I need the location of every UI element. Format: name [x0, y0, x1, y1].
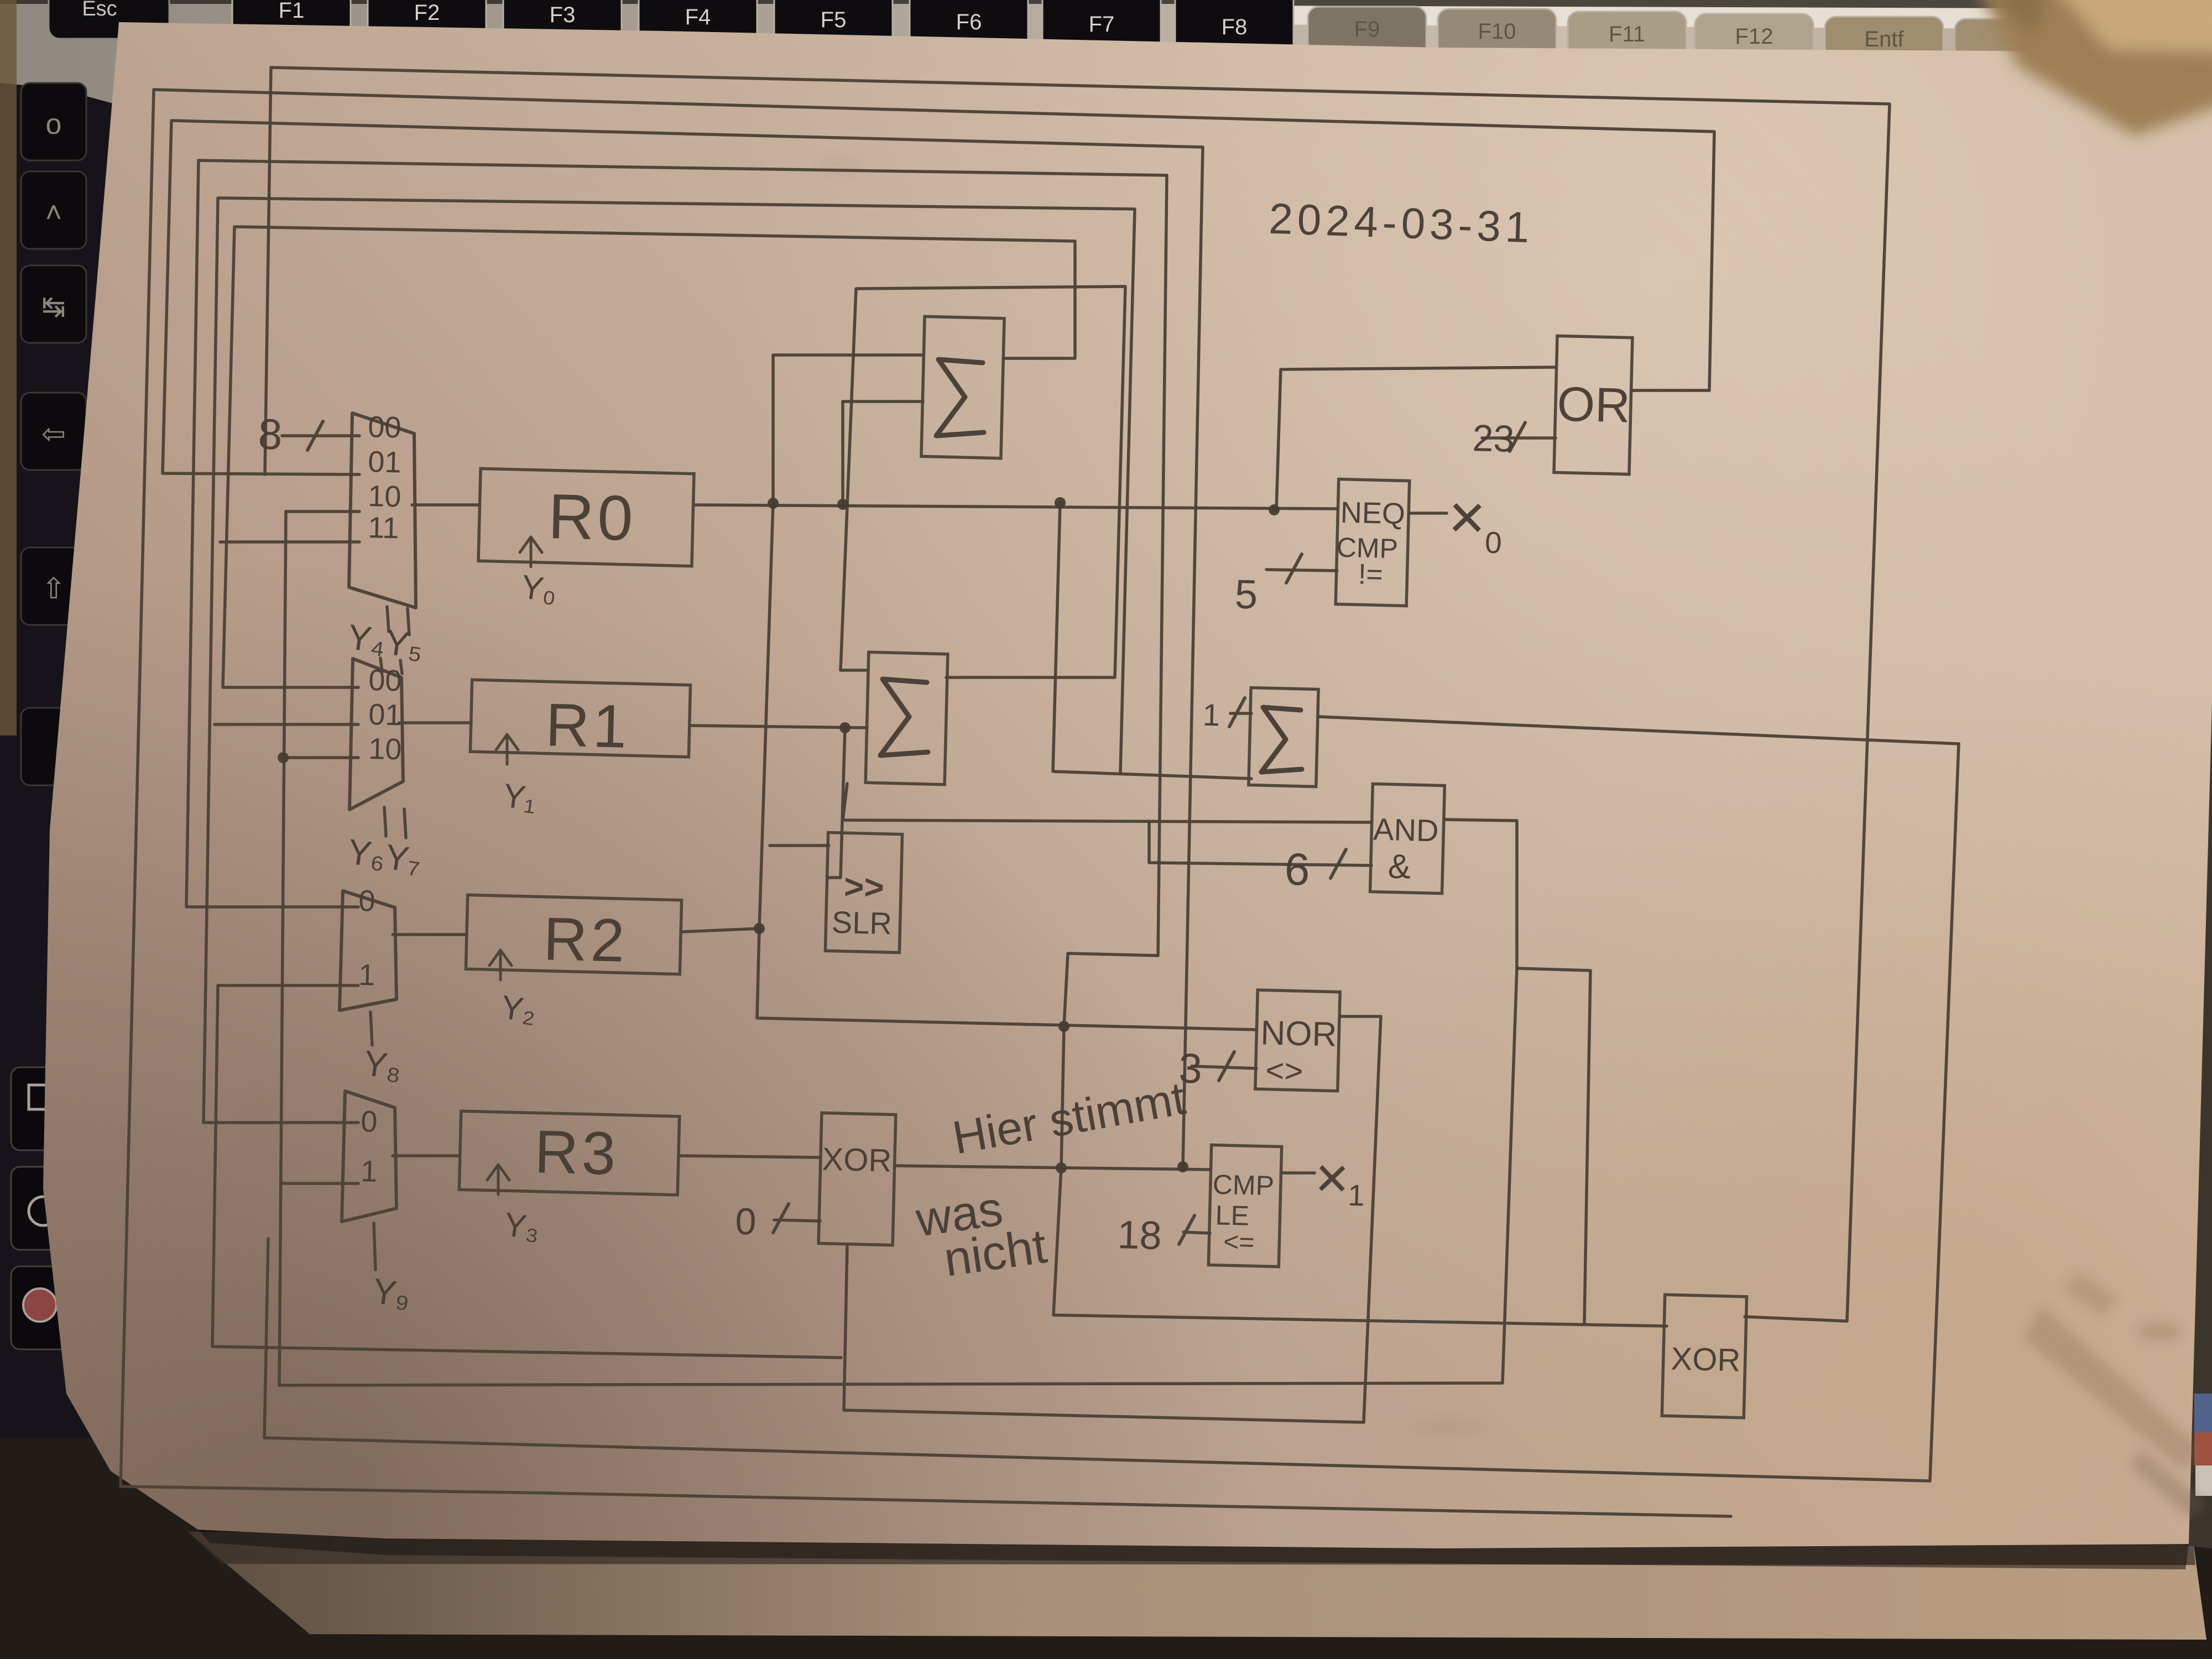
svg-text:<>: <> — [1265, 1052, 1303, 1089]
svg-text:>>: >> — [843, 868, 884, 907]
svg-text:F12: F12 — [1735, 24, 1773, 49]
svg-text:F7: F7 — [1089, 12, 1115, 36]
svg-text:NEQ: NEQ — [1340, 496, 1405, 531]
svg-text:11: 11 — [368, 511, 400, 545]
svg-text:Entf: Entf — [1864, 27, 1904, 51]
svg-text:F2: F2 — [414, 1, 440, 25]
svg-text:R2: R2 — [542, 905, 629, 975]
svg-text:R0: R0 — [547, 481, 637, 554]
svg-text:2024-03-31: 2024-03-31 — [1268, 194, 1535, 252]
svg-text:SLR: SLR — [831, 905, 892, 941]
svg-text:CMP: CMP — [1212, 1169, 1274, 1202]
svg-text:0: 0 — [735, 1201, 757, 1243]
svg-text:XOR: XOR — [822, 1141, 892, 1178]
svg-text:1: 1 — [358, 958, 376, 992]
svg-text:6: 6 — [1284, 844, 1311, 895]
svg-text:00: 00 — [368, 664, 403, 697]
svg-text:<=: <= — [1223, 1227, 1255, 1257]
svg-text:F10: F10 — [1478, 19, 1516, 44]
svg-text:18: 18 — [1117, 1213, 1162, 1258]
svg-text:10: 10 — [368, 479, 402, 513]
svg-text:!=: != — [1358, 558, 1383, 591]
svg-text:0: 0 — [358, 884, 376, 918]
svg-text:F11: F11 — [1609, 22, 1645, 46]
svg-text:01: 01 — [368, 698, 403, 732]
svg-text:F3: F3 — [550, 3, 576, 27]
svg-text:˄: ˄ — [45, 197, 62, 229]
svg-text:Y₃: Y₃ — [502, 1206, 542, 1247]
svg-text:F8: F8 — [1222, 15, 1248, 39]
svg-text:XOR: XOR — [1671, 1340, 1741, 1378]
svg-text:Y₉: Y₉ — [370, 1271, 413, 1316]
svg-text:1: 1 — [361, 1155, 378, 1188]
svg-text:Y₁: Y₁ — [500, 776, 539, 818]
svg-text:Y₈: Y₈ — [361, 1043, 405, 1088]
svg-text:8: 8 — [258, 409, 283, 458]
svg-text:Y₀: Y₀ — [519, 568, 560, 609]
svg-text:F5: F5 — [821, 8, 847, 32]
svg-text:↹: ↹ — [41, 291, 66, 323]
svg-text:F6: F6 — [956, 10, 982, 34]
svg-text:5: 5 — [1234, 571, 1258, 618]
svg-text:R3: R3 — [534, 1118, 620, 1188]
svg-text:OR: OR — [1557, 376, 1631, 432]
svg-text:01: 01 — [368, 445, 402, 479]
svg-text:1: 1 — [1202, 697, 1220, 733]
svg-text:R1: R1 — [545, 691, 631, 761]
svg-text:✕: ✕ — [1446, 491, 1488, 546]
svg-text:Esc: Esc — [82, 0, 117, 20]
svg-text:F4: F4 — [685, 5, 711, 29]
svg-text:o: o — [46, 108, 62, 140]
svg-text:✕: ✕ — [1313, 1154, 1351, 1204]
svg-text:⇧: ⇧ — [41, 573, 66, 605]
svg-text:23: 23 — [1472, 417, 1515, 460]
svg-text:00: 00 — [368, 410, 402, 444]
svg-text:1: 1 — [1348, 1179, 1365, 1213]
svg-text:10: 10 — [368, 732, 403, 766]
svg-text:0: 0 — [361, 1105, 378, 1139]
svg-text:F9: F9 — [1354, 17, 1380, 41]
svg-text:F1: F1 — [279, 0, 305, 23]
svg-text:&: & — [1387, 848, 1411, 886]
svg-text:⇦: ⇦ — [41, 418, 66, 450]
svg-text:Y₂: Y₂ — [499, 988, 539, 1030]
svg-text:NOR: NOR — [1260, 1014, 1337, 1053]
svg-text:AND: AND — [1373, 812, 1439, 848]
svg-text:0: 0 — [1484, 525, 1502, 560]
svg-text:LE: LE — [1215, 1199, 1250, 1231]
